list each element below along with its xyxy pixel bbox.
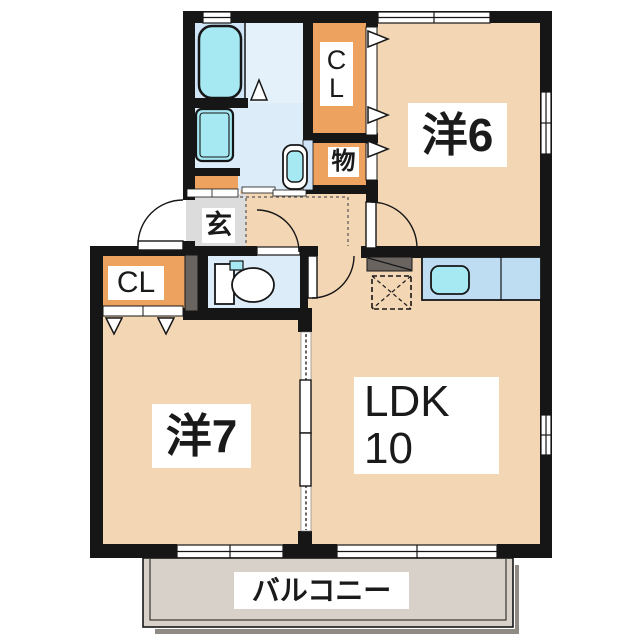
washing-machine-icon xyxy=(196,109,233,161)
room-label-storage: 物 xyxy=(328,147,359,177)
toilet-bowl-icon xyxy=(232,268,274,302)
western6-door-leaf xyxy=(366,202,376,248)
washbasin-bowl xyxy=(287,151,303,182)
toilet-side-cabinet xyxy=(185,255,198,311)
room-label-closet-north: C L xyxy=(320,42,353,106)
ldk-door-leaf xyxy=(308,256,317,298)
entrance-door-leaf xyxy=(138,241,183,250)
kitchen-sink-icon xyxy=(431,266,469,294)
floorplan-canvas: 洋6 洋7 LDK 10 バルコニー 玄 物 C L CL xyxy=(0,0,640,640)
wall-bath-bottom xyxy=(183,98,248,108)
bathtub-icon xyxy=(199,26,241,98)
ldk-label-text: LDK xyxy=(364,379,450,425)
room-label-ldk: LDK 10 xyxy=(354,377,499,474)
washroom-sliding-door xyxy=(242,187,275,193)
sliding-door-panel xyxy=(300,433,311,486)
room-label-balcony: バルコニー xyxy=(234,572,409,609)
shoe-cabinet-front xyxy=(187,189,238,197)
closet-north-line1: C xyxy=(327,46,347,74)
bathroom-floor-right xyxy=(245,18,305,103)
sliding-partition xyxy=(300,332,311,531)
room-label-entrance: 玄 xyxy=(202,208,235,243)
sliding-door-panel xyxy=(300,380,311,433)
wall-bath-closet xyxy=(303,11,313,140)
ldk-size-text: 10 xyxy=(364,426,413,472)
balcony-shadow-bottom xyxy=(155,629,519,634)
wall-divider-stub-top xyxy=(298,308,312,332)
wall-left-lower xyxy=(90,246,103,558)
wall-western7-top xyxy=(183,308,308,320)
wall-bottom-c xyxy=(497,544,552,558)
wall-closet-west6-top xyxy=(366,11,378,27)
room-label-western7: 洋7 xyxy=(152,404,251,468)
wall-hall-south-stub xyxy=(300,246,318,256)
room-label-closet-west: CL xyxy=(108,266,164,300)
entrance-door-arc xyxy=(138,200,183,245)
balcony-shadow-right xyxy=(515,565,519,629)
room-label-western6: 洋6 xyxy=(408,103,507,167)
toilet-door-leaf xyxy=(257,247,300,255)
wall-toilet-left xyxy=(198,246,208,308)
closet-north-line2: L xyxy=(329,74,344,102)
wall-washroom-bottom xyxy=(183,168,240,176)
wall-bottom-a xyxy=(90,544,177,558)
washroom-sliding-door xyxy=(273,190,306,196)
wall-closet-west6-mid xyxy=(366,180,378,202)
toilet-cistern xyxy=(230,261,243,270)
wall-bottom-b xyxy=(283,544,337,558)
wall-toilet-right xyxy=(300,256,308,308)
wall-divider-stub-bottom xyxy=(298,531,312,546)
